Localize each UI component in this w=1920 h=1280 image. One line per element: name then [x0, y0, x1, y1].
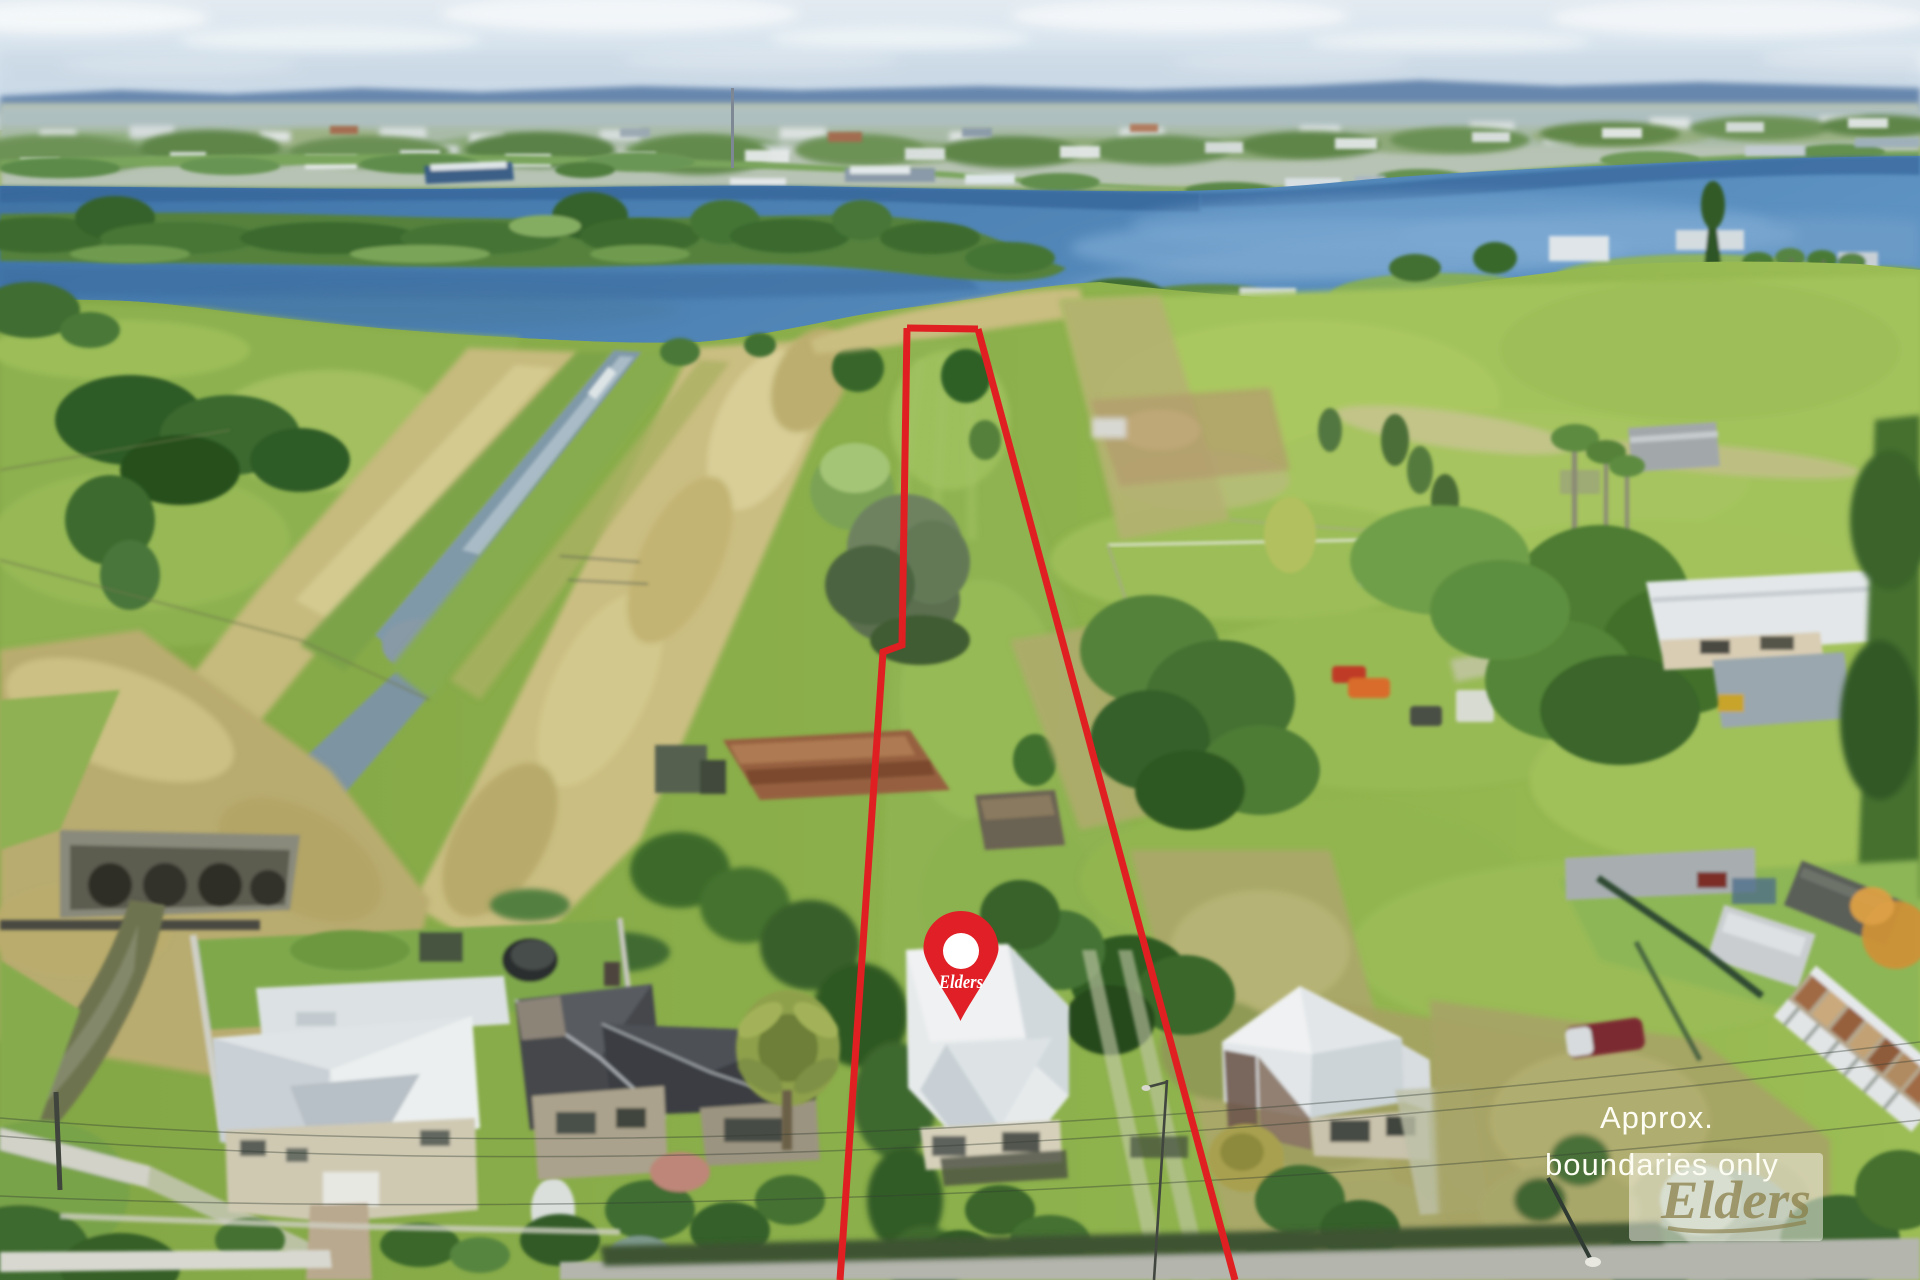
svg-text:Elders: Elders [938, 972, 983, 993]
svg-text:Approx.: Approx. [1600, 1100, 1714, 1135]
svg-text:boundaries only: boundaries only [1545, 1147, 1779, 1182]
